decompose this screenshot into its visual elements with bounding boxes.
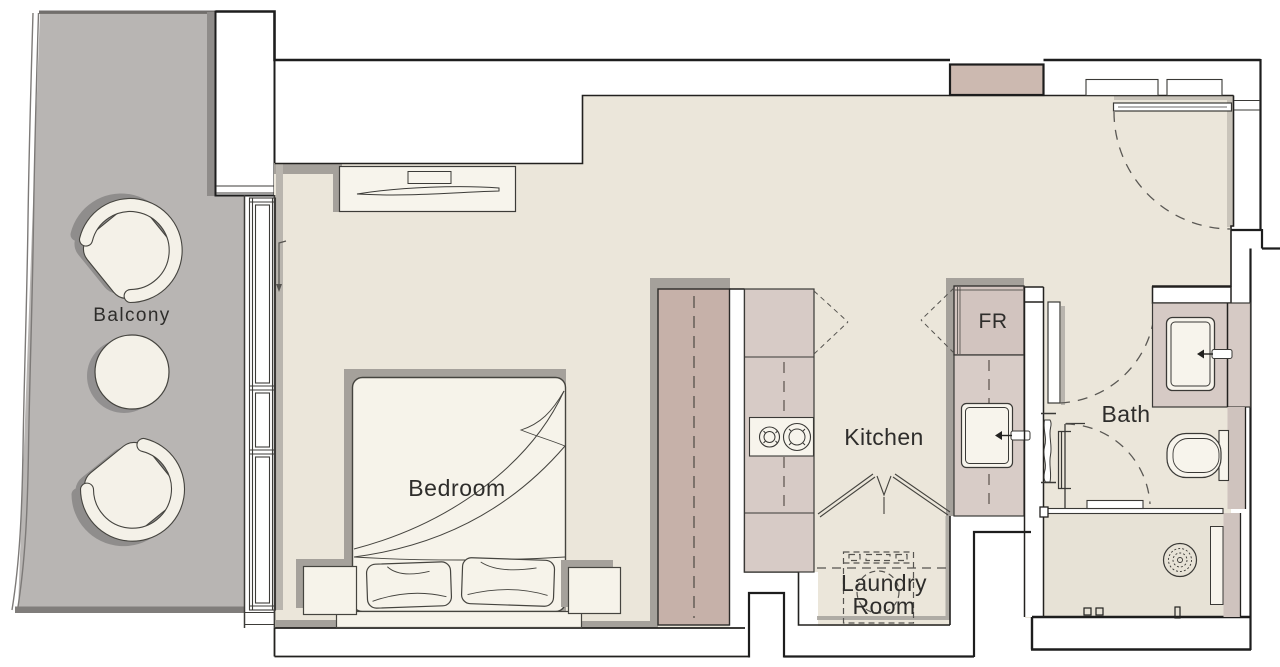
svg-text:Bath: Bath	[1102, 401, 1151, 427]
svg-text:Bedroom: Bedroom	[408, 475, 506, 501]
svg-text:FR: FR	[979, 310, 1008, 333]
svg-text:Room: Room	[853, 593, 916, 619]
svg-text:Kitchen: Kitchen	[844, 424, 924, 450]
svg-text:Balcony: Balcony	[93, 305, 170, 326]
